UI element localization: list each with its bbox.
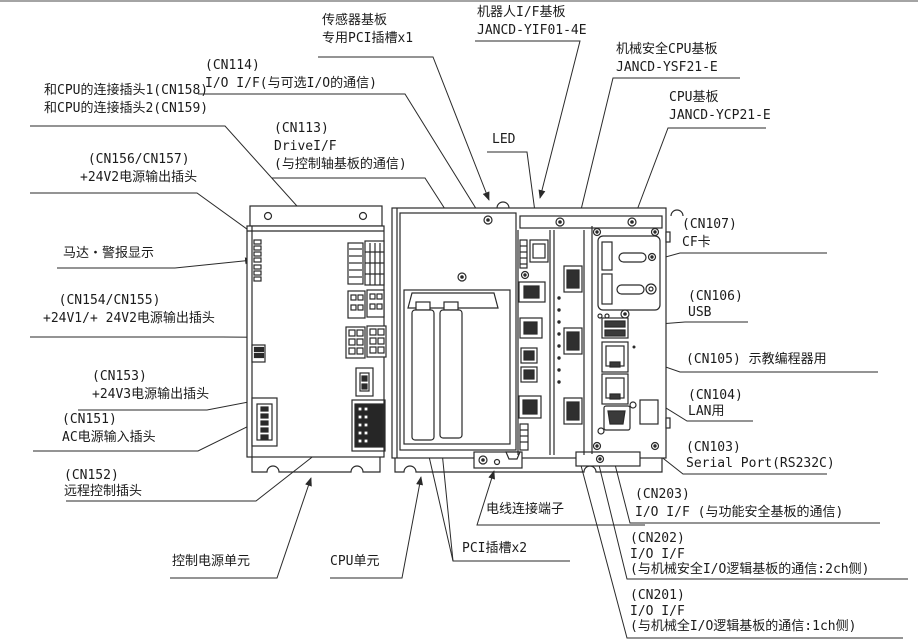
pci-slot-section — [400, 213, 516, 450]
label-cpu-board: CPU基板 JANCD-YCP21-E — [669, 89, 771, 125]
label-cn104: (CN104) LAN用 — [688, 388, 743, 420]
cn158-cn159-connector — [348, 241, 384, 285]
controller-wiring-diagram-page: 传感器基板 专用PCI插槽x1 机器人I/F基板 JANCD-YIF01-4E … — [0, 0, 918, 643]
cn151-connector — [252, 398, 277, 446]
blank-plate — [640, 400, 658, 424]
label-cn156-cn157: (CN156/CN157) +24V2电源输出插头 — [80, 151, 197, 187]
label-cn152: (CN152) 远程控制插头 — [64, 468, 142, 500]
label-motor-alarm: 马达・警报显示 — [63, 245, 154, 263]
label-sensor-pci-slot: 传感器基板 专用PCI插槽x1 — [322, 12, 413, 48]
label-cn153: (CN153) +24V3电源输出插头 — [92, 368, 209, 404]
label-led: LED — [492, 131, 515, 149]
label-cn154-cn155: (CN154/CN155) +24V1/+ 24V2电源输出插头 — [43, 292, 215, 328]
cpu-unit-box — [392, 202, 683, 472]
label-cn114: (CN114) I/O I/F(与可选I/O的通信) — [205, 57, 377, 93]
label-cn106: (CN106) USB — [688, 289, 743, 321]
label-cn103: (CN103) Serial Port(RS232C) — [686, 440, 835, 472]
power-supply-unit — [247, 206, 386, 472]
label-power-unit: 控制电源单元 — [172, 553, 250, 571]
label-cn203: (CN203) I/O I/F (与功能安全基板的通信) — [635, 486, 843, 522]
label-cn107: (CN107) CF卡 — [682, 216, 737, 252]
label-robot-if-board: 机器人I/F基板 JANCD-YIF01-4E — [477, 4, 587, 40]
cn152-connector — [352, 400, 385, 451]
label-cn113: (CN113) DriveI/F (与控制轴基板的通信) — [274, 120, 407, 174]
label-cn202: (CN202) I/O I/F (与机械安全I/O逻辑基板的通信:2ch侧) — [630, 531, 869, 578]
label-wire-terminal: 电线连接端子 — [486, 501, 564, 519]
label-cn158-cn159: 和CPU的连接插头1(CN158) 和CPU的连接插头2(CN159) — [44, 82, 208, 118]
label-cn105: (CN105) 示教编程器用 — [686, 351, 827, 369]
wire-terminal-hole — [495, 460, 500, 465]
label-safety-cpu-board: 机械安全CPU基板 JANCD-YSF21-E — [616, 41, 718, 77]
label-cpu-unit: CPU单元 — [330, 553, 379, 571]
label-cn201: (CN201) I/O I/F (与机械全I/O逻辑基板的通信:1ch侧) — [630, 588, 856, 635]
cn153-connector — [356, 368, 373, 396]
motor-alarm-led-strip — [254, 240, 261, 281]
edge-connector — [252, 345, 265, 362]
pci-slot-cover-1 — [412, 310, 434, 440]
pci-slot-cover-2 — [440, 310, 462, 438]
label-pci-slots: PCI插槽x2 — [462, 540, 527, 558]
label-cn151: (CN151) AC电源输入插头 — [62, 411, 156, 447]
